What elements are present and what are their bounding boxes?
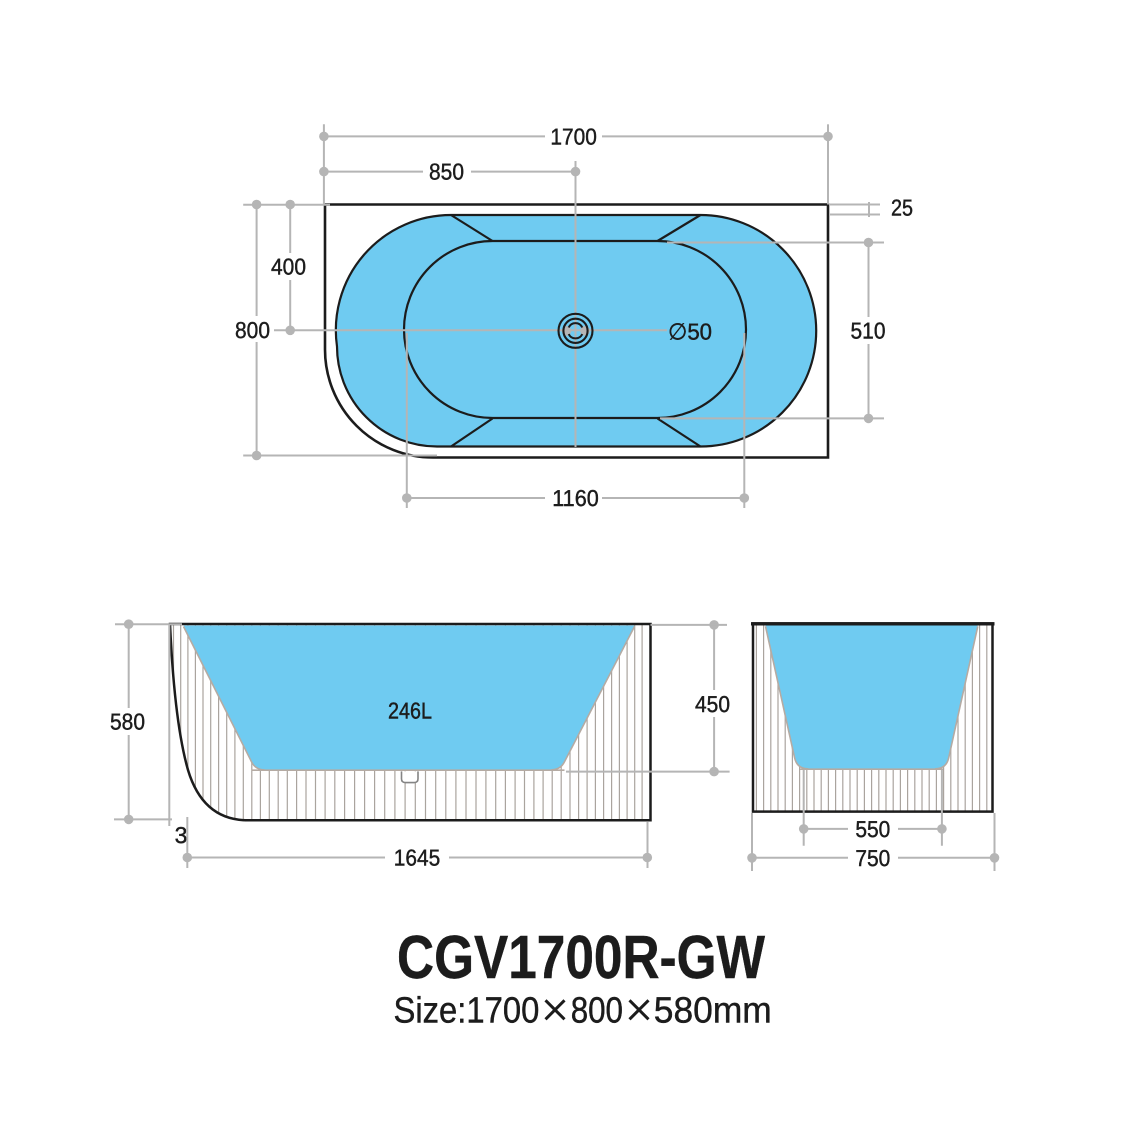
svg-text:750: 750 bbox=[855, 845, 890, 871]
svg-text:CGV1700R-GW: CGV1700R-GW bbox=[397, 923, 765, 991]
svg-text:850: 850 bbox=[429, 159, 464, 185]
svg-text:1700: 1700 bbox=[550, 123, 597, 149]
svg-text:1160: 1160 bbox=[552, 485, 599, 511]
svg-text:∅50: ∅50 bbox=[668, 319, 712, 345]
svg-text:550: 550 bbox=[855, 816, 890, 842]
svg-text:1645: 1645 bbox=[394, 845, 441, 871]
svg-text:800: 800 bbox=[235, 317, 270, 343]
svg-text:800: 800 bbox=[571, 990, 623, 1031]
svg-text:246L: 246L bbox=[388, 698, 432, 724]
svg-text:25: 25 bbox=[891, 195, 913, 221]
svg-text:580: 580 bbox=[110, 709, 145, 735]
svg-text:580mm: 580mm bbox=[654, 990, 772, 1031]
svg-text:450: 450 bbox=[695, 691, 730, 717]
svg-text:Size:1700: Size:1700 bbox=[394, 990, 540, 1031]
svg-text:3: 3 bbox=[175, 822, 188, 848]
svg-text:400: 400 bbox=[271, 254, 306, 280]
svg-text:510: 510 bbox=[851, 318, 886, 344]
